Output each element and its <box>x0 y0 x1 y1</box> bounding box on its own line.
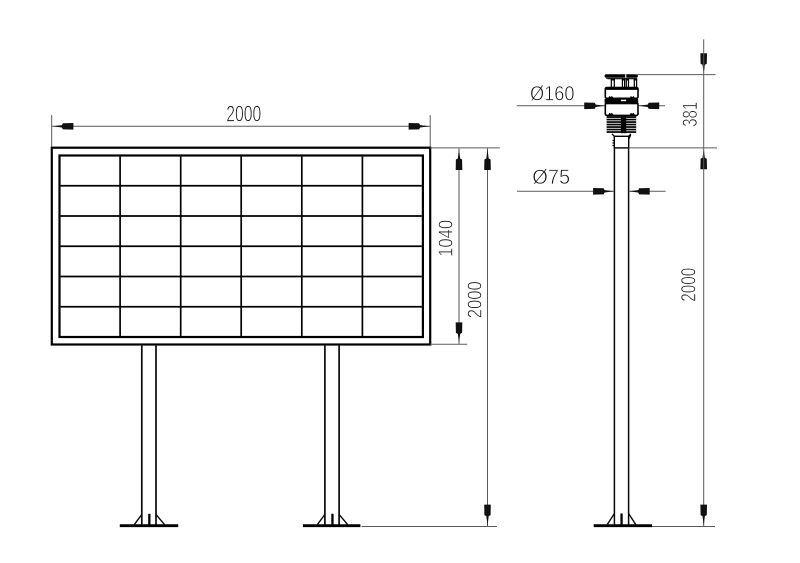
svg-text:2000: 2000 <box>226 100 261 126</box>
svg-text:2000: 2000 <box>463 281 486 318</box>
svg-text:1040: 1040 <box>435 220 458 257</box>
svg-text:Ø160: Ø160 <box>530 83 575 106</box>
svg-text:2000: 2000 <box>678 268 701 302</box>
svg-text:Ø75: Ø75 <box>532 166 570 189</box>
svg-text:381: 381 <box>678 102 702 127</box>
